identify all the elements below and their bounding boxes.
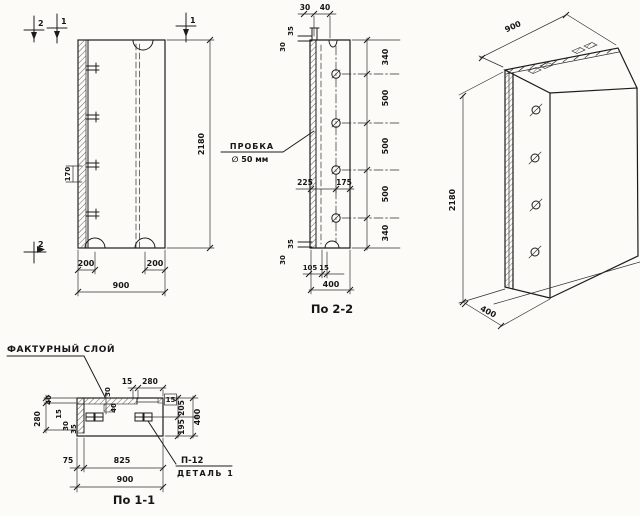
drawing-sheet: 170 200 200 900 2180 2 1 1 2	[0, 0, 640, 516]
dim-label-30-top: 30	[300, 3, 310, 12]
right-dim-column	[342, 38, 400, 250]
dim-label-400-right: 400	[193, 408, 202, 425]
top-protrusion	[310, 28, 319, 40]
iso-body-edges	[505, 70, 638, 298]
section-cut-mark-1-top: 1	[47, 14, 67, 43]
dim-label-340-2: 340	[381, 224, 390, 241]
texture-layer-top	[77, 398, 137, 404]
dim-label-280-left: 280	[33, 411, 42, 427]
dim-label-75: 75	[63, 456, 73, 465]
dim-label-175: 175	[336, 178, 352, 187]
dim-label-35-ll: 35	[287, 239, 295, 249]
texture-layer-callout: ФАКТУРНЫЙ СЛОЙ	[7, 343, 115, 397]
dim-label-500-1: 500	[381, 89, 390, 106]
dim-label-170: 170	[64, 167, 72, 182]
iso-dim-label-900: 900	[503, 19, 522, 34]
dim-label-105: 105	[303, 264, 318, 272]
cut-mark-2-top-label: 2	[38, 19, 44, 28]
iso-dim-label-2180: 2180	[448, 188, 457, 211]
dim-label-15-end: 15	[166, 396, 176, 404]
bottom-recess-section	[325, 241, 339, 248]
section-cut-mark-2-top: 2	[24, 16, 44, 42]
dim-label-900: 900	[113, 281, 130, 290]
dim-label-900-bottom: 900	[117, 475, 134, 484]
texture-layer-section	[310, 40, 316, 248]
dim-label-30-ul: 30	[279, 42, 287, 52]
dim-label-15-inner: 15	[55, 409, 63, 419]
dim-label-2180: 2180	[197, 132, 206, 155]
plug-callout-label: ПРОБКА	[230, 142, 274, 151]
dim-label-205: 205	[177, 400, 186, 416]
cut-mark-2-bottom-label: 2	[38, 240, 44, 249]
dim-label-35-inner: 35	[70, 424, 78, 434]
detail-code-text: П-12	[181, 456, 204, 466]
dim-label-400-depth: 400	[323, 280, 340, 289]
top-loop-mark	[329, 41, 337, 47]
dim-label-825: 825	[114, 456, 131, 465]
keyways	[86, 413, 152, 421]
dim-label-35-ul: 35	[287, 26, 295, 36]
dim-label-40-left: 40	[45, 395, 53, 405]
texture-layer-strip	[78, 40, 86, 248]
dim-label-40-top: 40	[320, 3, 330, 12]
dim-label-340-1: 340	[381, 48, 390, 65]
dim-label-30-key: 30	[104, 387, 112, 397]
technical-drawing-svg: 170 200 200 900 2180 2 1 1 2	[0, 0, 640, 516]
dim-label-280-top: 280	[142, 377, 158, 386]
section-cut-mark-1-right: 1	[176, 13, 196, 42]
dim-label-500-3: 500	[381, 185, 390, 202]
dim-label-195: 195	[177, 419, 186, 435]
section-2-2-view: 30 40 35 30 35 30 ПРОБКА ∅ 50 мм 225 175…	[221, 3, 400, 316]
dim-label-30-inner: 30	[62, 421, 70, 431]
iso-ground-line	[494, 262, 640, 304]
iso-plug-marks	[529, 104, 542, 258]
dim-label-225: 225	[297, 178, 313, 187]
dim-label-15: 15	[319, 264, 329, 272]
section-1-1-view: 30 40 15 ФАКТУРНЫЙ СЛОЙ П-12 ДЕТАЛЬ 1 15…	[7, 343, 234, 507]
dim-label-200-right: 200	[147, 259, 164, 268]
section-cut-mark-2-bottom: 2	[24, 240, 46, 263]
dim-label-500-2: 500	[381, 137, 390, 154]
front-elevation-view: 170 200 200 900 2180 2 1 1 2	[24, 13, 214, 296]
dim-label-40-key: 40	[110, 403, 118, 413]
texture-layer-text: ФАКТУРНЫЙ СЛОЙ	[7, 343, 115, 355]
texture-layer-return	[77, 404, 84, 433]
front-height-dim-lines	[167, 40, 214, 248]
cut-mark-1-top-label: 1	[61, 17, 67, 26]
caption-section-1-1: По 1-1	[113, 493, 155, 507]
caption-section-2-2: По 2-2	[311, 302, 353, 316]
s11-top-dim-lines	[128, 388, 166, 399]
bottom-recess-right	[135, 238, 155, 248]
cut-mark-1-right-label: 1	[190, 16, 196, 25]
isometric-view: 900 2180 400	[448, 12, 640, 329]
detail-label-text: ДЕТАЛЬ 1	[177, 469, 234, 478]
dim-label-15-top: 15	[122, 377, 132, 386]
iso-dim-lines	[459, 14, 616, 327]
plug-callout-diameter: ∅ 50 мм	[232, 155, 269, 164]
plug-callout: ПРОБКА ∅ 50 мм	[221, 131, 314, 164]
dim-label-200-left: 200	[78, 259, 95, 268]
dim-label-30-ll: 30	[279, 255, 287, 265]
